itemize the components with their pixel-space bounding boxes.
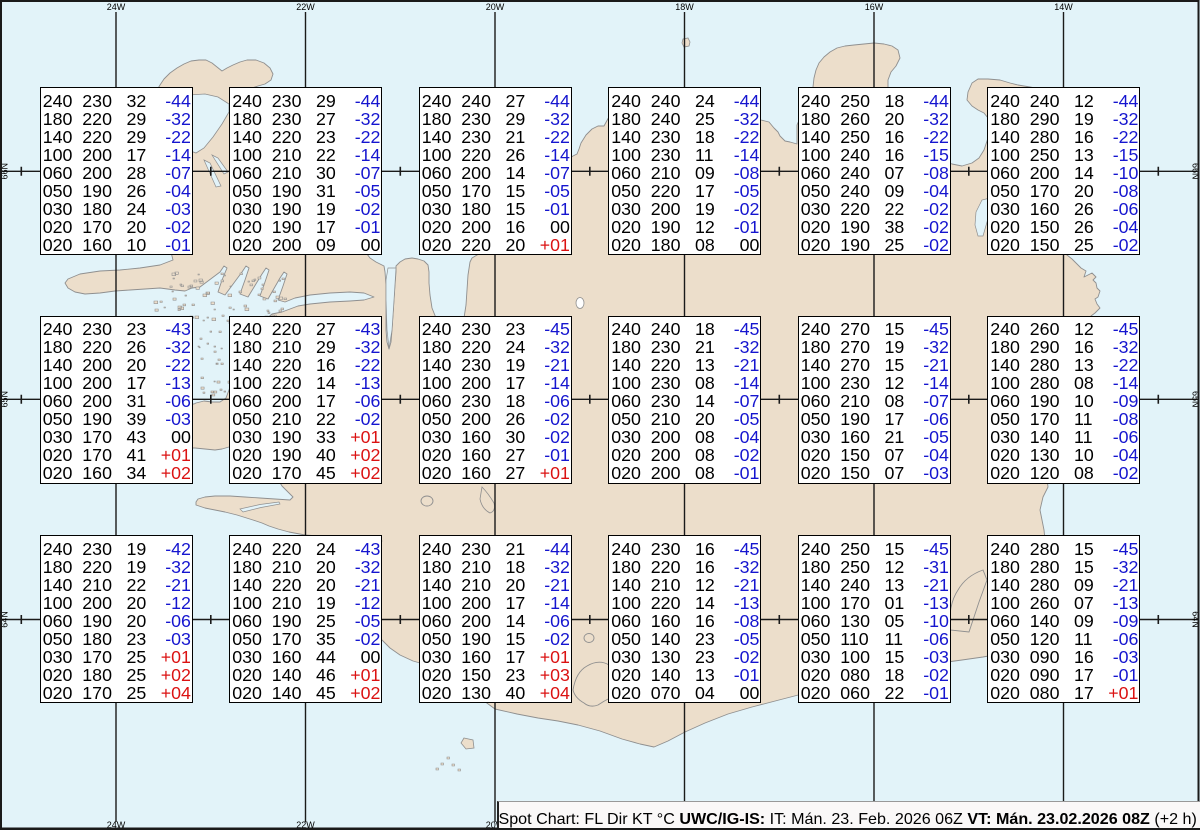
svg-text:16W: 16W: [865, 2, 884, 12]
svg-text:24W: 24W: [107, 2, 126, 12]
svg-text:18W: 18W: [675, 2, 694, 12]
svg-text:14W: 14W: [1054, 2, 1073, 12]
svg-text:22W: 22W: [296, 2, 315, 12]
svg-text:20W: 20W: [486, 2, 505, 12]
